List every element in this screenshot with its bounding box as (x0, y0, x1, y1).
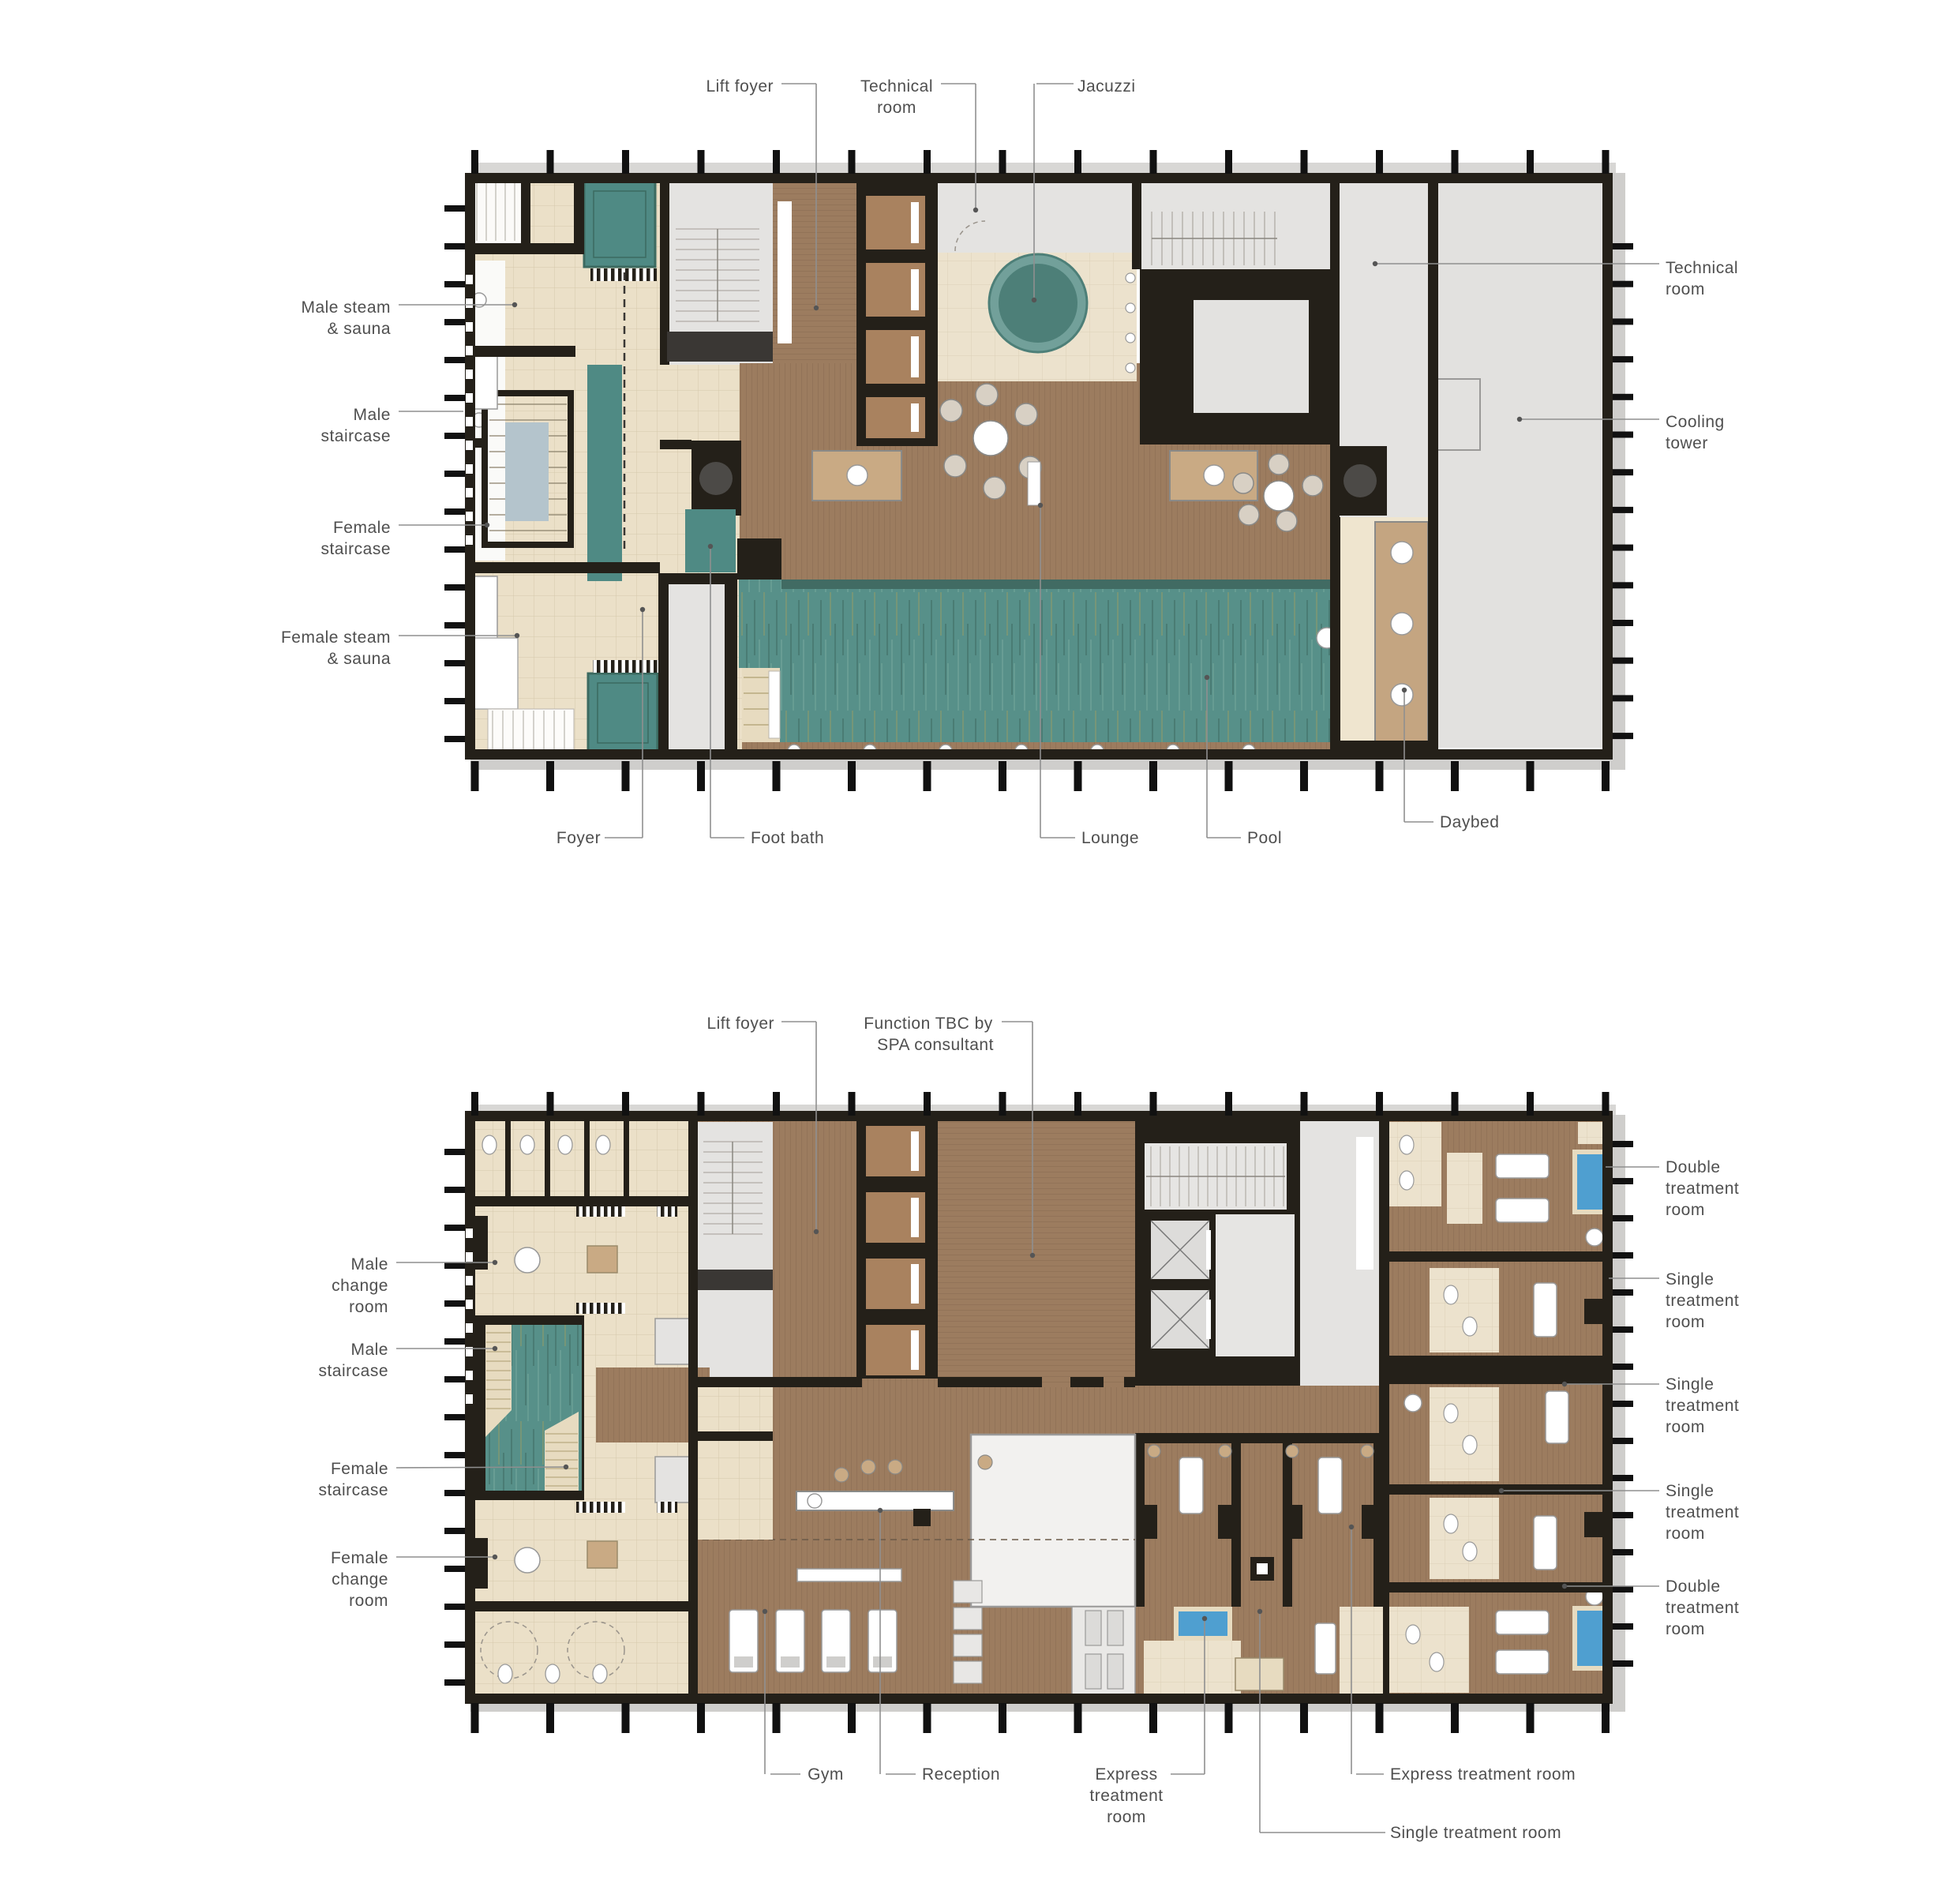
svg-text:Technical: Technical (1666, 259, 1738, 277)
svg-text:Single: Single (1666, 1375, 1714, 1394)
svg-text:treatment: treatment (1666, 1292, 1739, 1310)
svg-text:Female: Female (331, 1460, 388, 1478)
svg-text:Double: Double (1666, 1158, 1721, 1176)
svg-text:staircase: staircase (320, 427, 391, 445)
svg-text:Double: Double (1666, 1578, 1721, 1596)
svg-text:& sauna: & sauna (327, 320, 391, 338)
svg-text:Male: Male (350, 1341, 388, 1359)
svg-text:room: room (1666, 1313, 1705, 1331)
svg-text:Daybed: Daybed (1440, 813, 1499, 831)
svg-text:Technical: Technical (860, 77, 933, 96)
svg-text:staircase: staircase (318, 1481, 388, 1499)
svg-text:Male steam: Male steam (301, 298, 391, 317)
svg-text:Reception: Reception (922, 1765, 1000, 1784)
svg-text:Female: Female (331, 1549, 388, 1567)
svg-text:treatment: treatment (1666, 1503, 1739, 1521)
svg-text:room: room (349, 1298, 388, 1316)
svg-text:room: room (1666, 280, 1705, 298)
svg-text:Lounge: Lounge (1081, 829, 1139, 847)
svg-text:treatment: treatment (1666, 1397, 1739, 1415)
svg-text:treatment: treatment (1089, 1787, 1163, 1805)
svg-text:Function TBC by: Function TBC by (864, 1015, 993, 1033)
svg-text:room: room (1666, 1418, 1705, 1436)
svg-text:Female: Female (333, 519, 391, 537)
svg-text:Single: Single (1666, 1482, 1714, 1500)
svg-text:room: room (1666, 1201, 1705, 1219)
svg-text:Express treatment room: Express treatment room (1390, 1765, 1576, 1784)
svg-text:Single treatment room: Single treatment room (1390, 1824, 1561, 1842)
svg-text:staircase: staircase (320, 540, 391, 558)
svg-text:room: room (1666, 1620, 1705, 1638)
svg-text:Lift foyer: Lift foyer (706, 1015, 774, 1033)
svg-text:treatment: treatment (1666, 1180, 1739, 1198)
svg-text:Lift foyer: Lift foyer (706, 77, 774, 96)
svg-text:tower: tower (1666, 434, 1708, 452)
svg-text:room: room (349, 1592, 388, 1610)
svg-text:Single: Single (1666, 1270, 1714, 1289)
svg-text:change: change (332, 1277, 388, 1295)
svg-text:Cooling: Cooling (1666, 413, 1725, 431)
svg-text:Female steam: Female steam (281, 628, 391, 647)
svg-text:Pool: Pool (1247, 829, 1282, 847)
svg-text:Gym: Gym (808, 1765, 844, 1784)
svg-text:treatment: treatment (1666, 1599, 1739, 1617)
svg-text:room: room (1107, 1808, 1146, 1826)
svg-text:Foot bath: Foot bath (751, 829, 824, 847)
svg-text:Male: Male (350, 1255, 388, 1274)
svg-text:SPA consultant: SPA consultant (877, 1036, 994, 1054)
svg-text:Express: Express (1095, 1765, 1157, 1784)
svg-text:& sauna: & sauna (327, 650, 391, 668)
svg-text:Foyer: Foyer (557, 829, 601, 847)
svg-text:staircase: staircase (318, 1362, 388, 1380)
svg-text:room: room (877, 99, 916, 117)
svg-text:change: change (332, 1570, 388, 1589)
svg-text:Jacuzzi: Jacuzzi (1077, 77, 1136, 96)
svg-text:room: room (1666, 1525, 1705, 1543)
svg-text:Male: Male (353, 406, 391, 424)
